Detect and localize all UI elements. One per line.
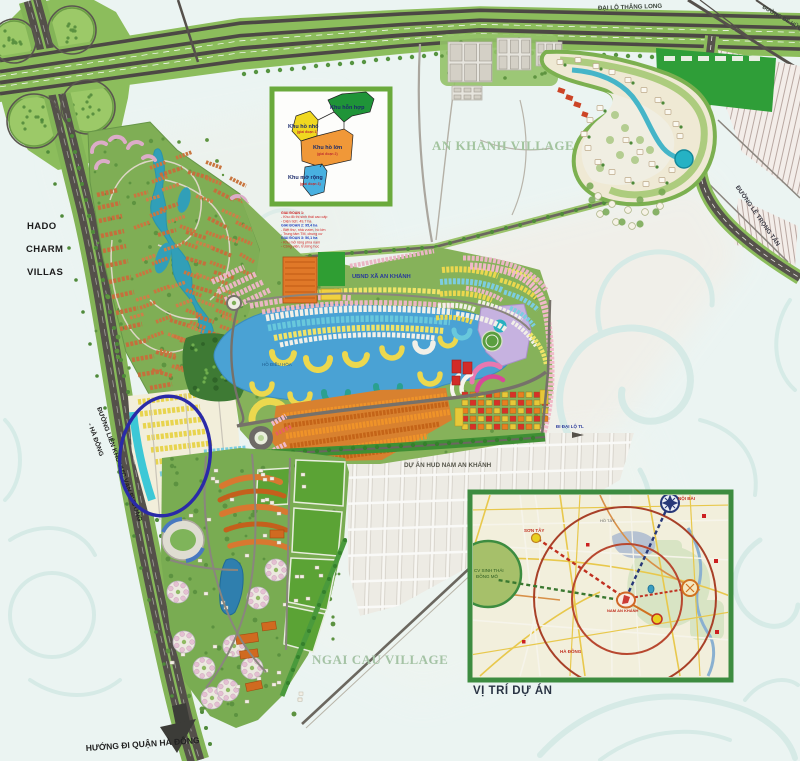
svg-text:NỘI BÀI: NỘI BÀI [678,494,695,501]
svg-text:HÀ ĐÔNG: HÀ ĐÔNG [560,647,582,654]
svg-text:HADO: HADO [27,221,57,232]
svg-text:(giai đoạn 3): (giai đoạn 3) [300,182,321,186]
svg-text:NAM AN KHÁNH: NAM AN KHÁNH [607,608,639,613]
svg-text:VILLAS: VILLAS [27,267,63,278]
svg-text:ĐỒNG MÔ: ĐỒNG MÔ [476,573,498,579]
svg-text:AN KHANH VILLAGE: AN KHANH VILLAGE [432,138,574,153]
svg-text:UBND XÃ AN KHÁNH: UBND XÃ AN KHÁNH [352,273,411,280]
svg-text:CHARM: CHARM [26,244,63,255]
svg-text:SƠN TÂY: SƠN TÂY [524,527,544,533]
svg-text:NGAI CAU VILLAGE: NGAI CAU VILLAGE [312,652,448,667]
svg-text:DỰ ÁN HUD NAM AN KHÁNH: DỰ ÁN HUD NAM AN KHÁNH [404,460,492,469]
svg-text:ĐI ĐẠI LỘ TL: ĐI ĐẠI LỘ TL [556,422,584,429]
svg-text:HỒ TÂY: HỒ TÂY [600,518,615,523]
svg-text:- Công viên, trường học: - Công viên, trường học [281,245,319,249]
svg-text:(giai đoạn 2): (giai đoạn 2) [317,152,338,156]
svg-text:CV SINH THÁI: CV SINH THÁI [474,567,504,573]
svg-text:Khu hồ lớn: Khu hồ lớn [313,145,343,151]
svg-text:VỊ TRÍ DỰ ÁN: VỊ TRÍ DỰ ÁN [473,684,552,697]
svg-text:HỒ ĐIỀU HÒA: HỒ ĐIỀU HÒA [262,361,292,367]
svg-text:(giai đoạn 1): (giai đoạn 1) [297,130,318,134]
svg-text:Khu mở rộng: Khu mở rộng [288,175,323,181]
svg-text:Khu hỗn hợp: Khu hỗn hợp [330,104,365,111]
